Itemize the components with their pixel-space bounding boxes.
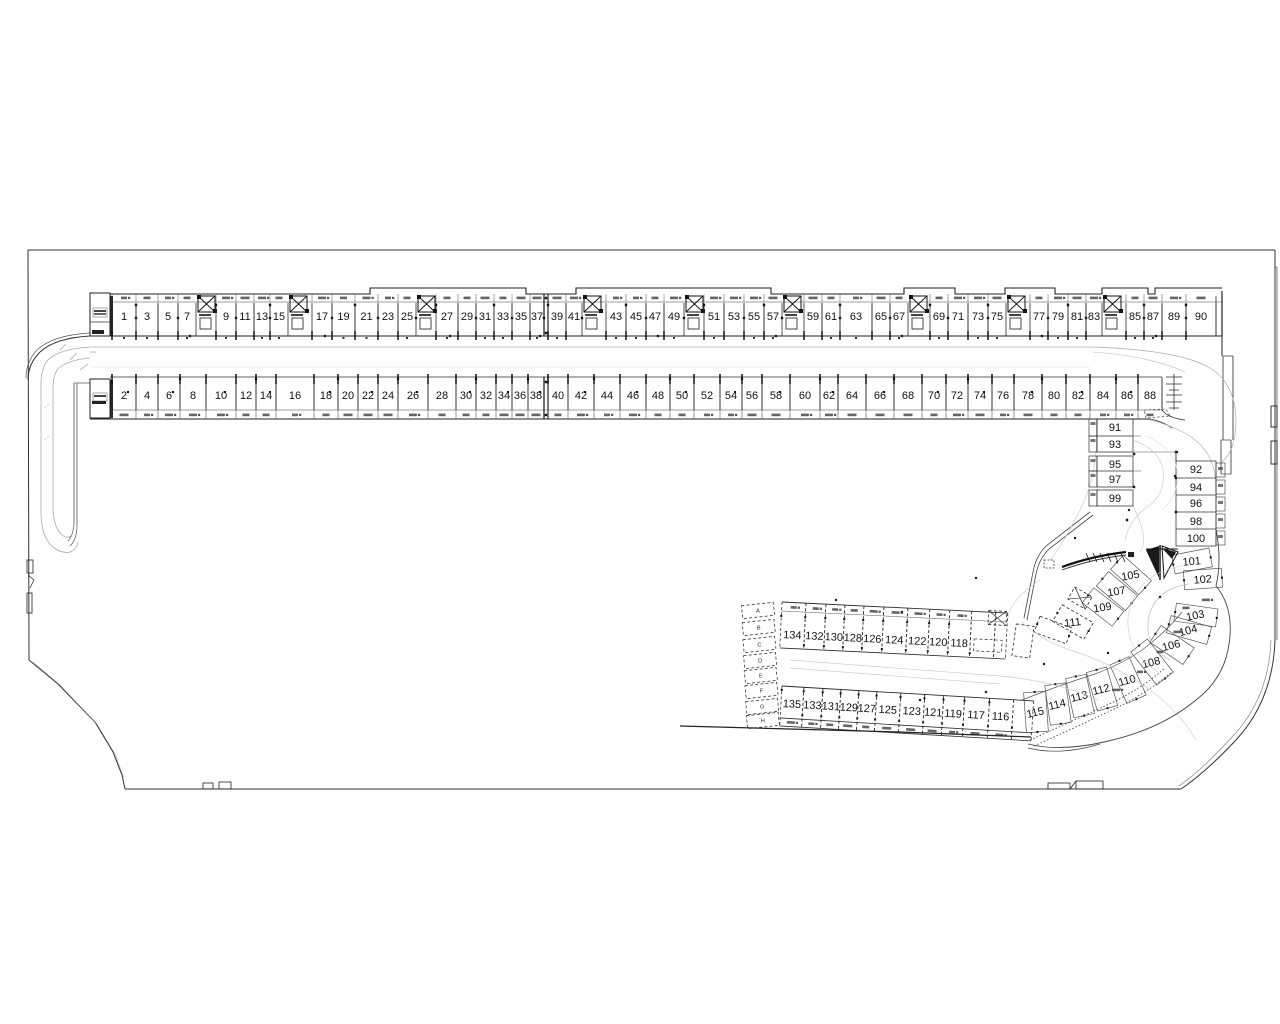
svg-text:33: 33: [497, 311, 509, 323]
svg-text:27: 27: [441, 311, 453, 323]
svg-text:84: 84: [1097, 390, 1109, 402]
svg-text:56: 56: [746, 390, 758, 402]
svg-text:133: 133: [803, 699, 822, 712]
svg-text:68: 68: [902, 390, 914, 402]
svg-text:127: 127: [857, 703, 876, 716]
svg-text:130: 130: [824, 631, 843, 644]
svg-text:12: 12: [240, 390, 252, 402]
svg-text:92: 92: [1190, 464, 1202, 476]
svg-text:35: 35: [515, 311, 527, 323]
svg-text:49: 49: [668, 311, 680, 323]
svg-text:40: 40: [552, 390, 564, 402]
svg-text:90: 90: [1195, 311, 1207, 323]
svg-text:8: 8: [190, 390, 196, 402]
svg-text:37: 37: [531, 311, 543, 323]
svg-text:132: 132: [805, 630, 824, 643]
svg-text:A: A: [756, 609, 760, 615]
svg-text:23: 23: [382, 311, 394, 323]
svg-text:11: 11: [239, 311, 250, 323]
svg-text:28: 28: [436, 390, 448, 402]
svg-text:65: 65: [875, 311, 887, 323]
svg-text:73: 73: [972, 311, 984, 323]
svg-text:29: 29: [461, 311, 473, 323]
svg-text:9: 9: [223, 311, 229, 323]
svg-text:57: 57: [767, 311, 779, 323]
svg-text:79: 79: [1052, 311, 1064, 323]
svg-text:3: 3: [144, 311, 150, 323]
svg-text:6: 6: [166, 390, 172, 402]
svg-text:19: 19: [337, 311, 349, 323]
svg-text:88: 88: [1144, 390, 1156, 402]
svg-text:97: 97: [1109, 474, 1121, 486]
svg-text:55: 55: [748, 311, 760, 323]
svg-text:129: 129: [839, 701, 858, 714]
svg-text:C: C: [757, 643, 761, 649]
svg-text:122: 122: [908, 635, 927, 648]
svg-text:77: 77: [1033, 311, 1045, 323]
svg-text:64: 64: [846, 390, 858, 402]
svg-text:7: 7: [184, 311, 190, 323]
svg-text:D: D: [758, 659, 762, 665]
svg-text:125: 125: [878, 704, 897, 717]
svg-text:63: 63: [850, 311, 862, 323]
svg-text:51: 51: [708, 311, 720, 323]
svg-text:53: 53: [728, 311, 740, 323]
svg-text:98: 98: [1190, 516, 1202, 528]
svg-text:99: 99: [1109, 493, 1121, 505]
svg-text:71: 71: [952, 311, 964, 323]
svg-text:83: 83: [1088, 311, 1100, 323]
svg-text:124: 124: [885, 634, 904, 647]
svg-text:95: 95: [1109, 459, 1121, 471]
svg-text:48: 48: [652, 390, 664, 402]
svg-text:72: 72: [951, 390, 963, 402]
svg-text:123: 123: [902, 705, 921, 718]
svg-text:69: 69: [933, 311, 945, 323]
svg-text:89: 89: [1168, 311, 1180, 323]
svg-text:52: 52: [701, 390, 713, 402]
svg-text:118: 118: [950, 637, 968, 650]
svg-text:25: 25: [401, 311, 413, 323]
svg-text:44: 44: [601, 390, 613, 402]
svg-text:76: 76: [997, 390, 1009, 402]
svg-text:128: 128: [843, 632, 862, 645]
svg-text:43: 43: [610, 311, 622, 323]
svg-text:59: 59: [807, 311, 819, 323]
svg-text:87: 87: [1147, 311, 1159, 323]
svg-text:96: 96: [1190, 498, 1202, 510]
svg-text:15: 15: [273, 311, 285, 323]
svg-text:101: 101: [1182, 555, 1201, 569]
svg-text:93: 93: [1109, 439, 1121, 451]
svg-text:32: 32: [480, 390, 492, 402]
svg-text:45: 45: [630, 311, 642, 323]
svg-text:116: 116: [991, 711, 1009, 724]
svg-text:20: 20: [342, 390, 354, 402]
svg-text:B: B: [757, 626, 761, 632]
svg-text:119: 119: [944, 708, 962, 721]
svg-text:H: H: [761, 719, 765, 725]
svg-text:121: 121: [924, 706, 943, 719]
svg-text:1: 1: [121, 311, 127, 323]
svg-text:75: 75: [991, 311, 1003, 323]
svg-text:126: 126: [863, 633, 882, 646]
svg-text:111: 111: [1064, 616, 1082, 630]
svg-text:16: 16: [289, 390, 301, 402]
svg-text:120: 120: [929, 636, 948, 649]
svg-text:4: 4: [144, 390, 150, 402]
svg-text:36: 36: [514, 390, 526, 402]
svg-text:E: E: [759, 674, 763, 680]
svg-text:135: 135: [782, 698, 801, 711]
svg-text:G: G: [760, 705, 764, 711]
svg-text:131: 131: [821, 700, 840, 713]
svg-text:102: 102: [1193, 573, 1212, 587]
svg-text:81: 81: [1071, 311, 1083, 323]
svg-text:60: 60: [799, 390, 811, 402]
svg-text:85: 85: [1129, 311, 1141, 323]
svg-text:13: 13: [256, 311, 268, 323]
svg-text:47: 47: [649, 311, 661, 323]
svg-text:91: 91: [1109, 422, 1121, 434]
svg-text:39: 39: [551, 311, 563, 323]
svg-text:61: 61: [825, 311, 837, 323]
svg-text:80: 80: [1048, 390, 1060, 402]
svg-text:41: 41: [568, 311, 580, 323]
svg-text:134: 134: [783, 629, 802, 642]
svg-text:117: 117: [967, 709, 985, 722]
svg-text:67: 67: [893, 311, 905, 323]
svg-text:21: 21: [360, 311, 372, 323]
svg-text:100: 100: [1187, 533, 1205, 545]
svg-text:5: 5: [165, 311, 171, 323]
svg-text:2: 2: [121, 390, 127, 402]
svg-text:31: 31: [479, 311, 491, 323]
svg-text:24: 24: [382, 390, 394, 402]
svg-text:17: 17: [316, 311, 328, 323]
svg-text:94: 94: [1190, 482, 1202, 494]
